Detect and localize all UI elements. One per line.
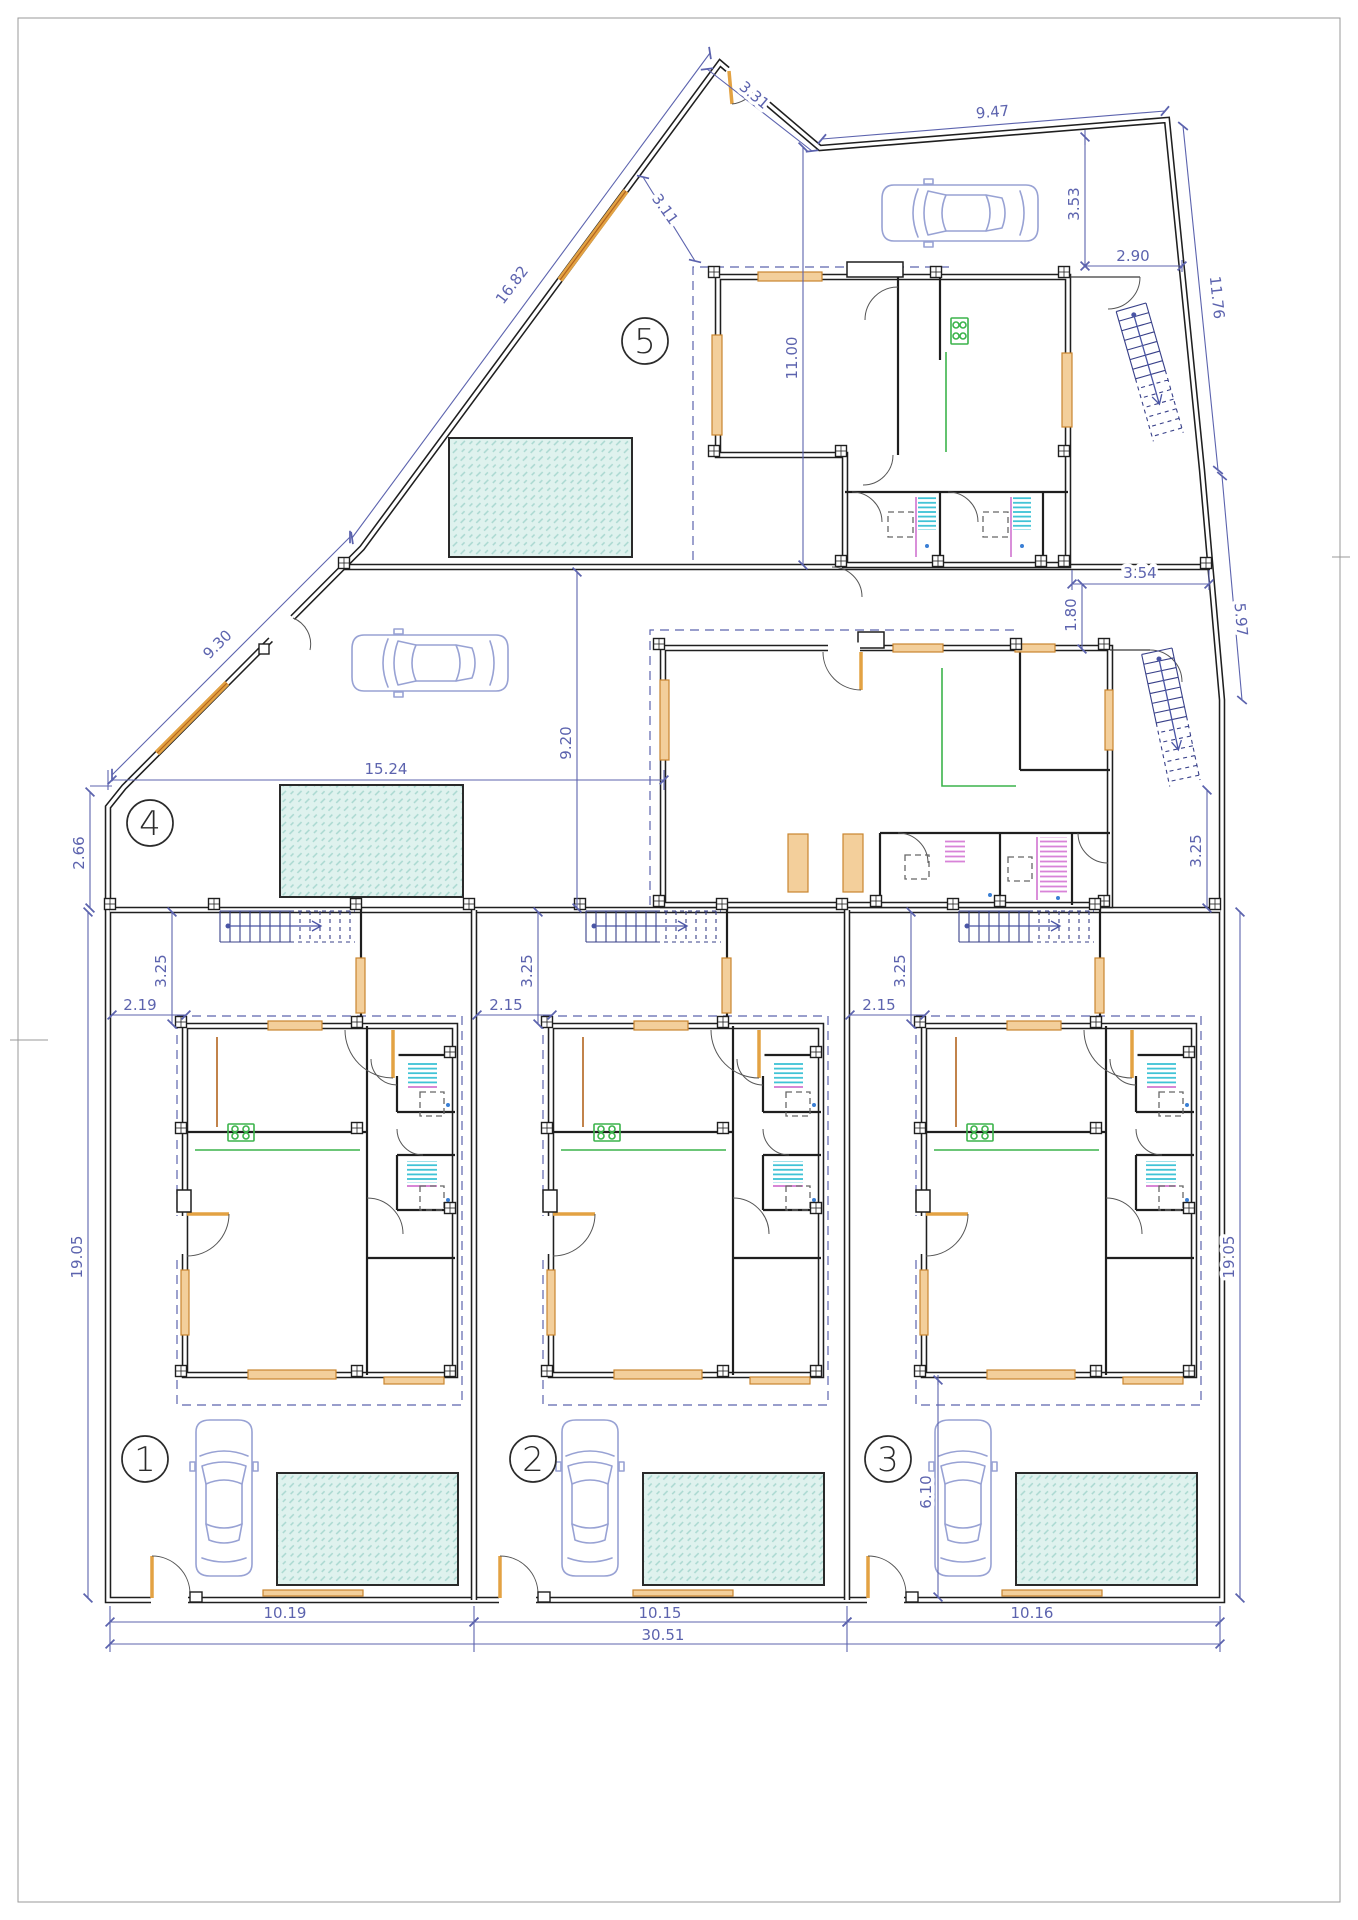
- plot-number-label: 5: [634, 322, 656, 362]
- dimension-label: 2.19: [123, 996, 156, 1014]
- staircase-icon: [1142, 648, 1200, 786]
- stove-icon: [951, 318, 968, 344]
- plot-number-badge: 4: [127, 800, 173, 846]
- dimension-label: 3.54: [1123, 564, 1156, 582]
- car-icon: [352, 629, 508, 697]
- dimension-label: 3.11: [648, 190, 682, 228]
- dimension-label: 5.97: [1231, 602, 1252, 637]
- dimension-labels: 3.31 9.47 3.53 2.90 11.76 3.11 16.82 11.…: [68, 78, 1251, 1644]
- dimension-label: 19.05: [1220, 1236, 1238, 1279]
- dimension-label: 15.24: [365, 760, 408, 778]
- pool: [449, 438, 632, 557]
- plot3-house: [915, 899, 1202, 1586]
- shower-tray: [905, 855, 929, 879]
- dimension-label: 2.15: [862, 996, 895, 1014]
- plot-number-label: 4: [139, 804, 161, 844]
- plot4-building: [654, 567, 1183, 907]
- dimension-label: 2.66: [70, 836, 88, 869]
- shower-tray: [1008, 857, 1032, 881]
- pool: [280, 785, 463, 897]
- dimension-label: 3.25: [518, 954, 536, 987]
- dimension-label: 10.19: [264, 1604, 307, 1622]
- plot-number-badge: 1: [122, 1436, 168, 1482]
- dimension-label: 11.76: [1206, 275, 1228, 320]
- dimension-label: 16.82: [492, 262, 532, 307]
- floor-plan-canvas: 3.31 9.47 3.53 2.90 11.76 3.11 16.82 11.…: [0, 0, 1358, 1920]
- dimension-label: 11.00: [783, 337, 801, 380]
- plot-number-badge: 5: [622, 318, 668, 364]
- dimension-label: 3.25: [891, 954, 909, 987]
- dimension-label: 19.05: [68, 1236, 86, 1279]
- plot2-house: [542, 899, 829, 1586]
- dimension-label: 2.90: [1116, 247, 1149, 265]
- plot-number-label: 2: [522, 1440, 544, 1480]
- plot-number-label: 3: [877, 1440, 899, 1480]
- staircase-icon: [1116, 303, 1183, 441]
- parcel-dashed-lines: [650, 267, 1015, 905]
- plot-number-label: 1: [134, 1440, 156, 1480]
- dimension-label: 10.15: [639, 1604, 682, 1622]
- plot-number-badge: 2: [510, 1436, 556, 1482]
- dimension-label: 3.25: [1187, 834, 1205, 867]
- dimension-label: 3.53: [1065, 187, 1083, 220]
- dimension-label: 10.16: [1011, 1604, 1054, 1622]
- dimension-label: 9.20: [557, 726, 575, 759]
- dimension-label: 30.51: [642, 1626, 685, 1644]
- floor-plan-page: 3.31 9.47 3.53 2.90 11.76 3.11 16.82 11.…: [0, 0, 1358, 1920]
- dimension-label: 2.15: [489, 996, 522, 1014]
- shower-tray: [983, 512, 1008, 537]
- dimension-label: 6.10: [917, 1475, 935, 1508]
- shower-tray: [888, 512, 913, 537]
- dimension-label: 9.47: [975, 102, 1010, 123]
- dimension-label: 1.80: [1062, 598, 1080, 631]
- plot-number-badge: 3: [865, 1436, 911, 1482]
- dimension-label: 3.25: [152, 954, 170, 987]
- plot1-house: [176, 899, 463, 1586]
- car-icon: [882, 179, 1038, 247]
